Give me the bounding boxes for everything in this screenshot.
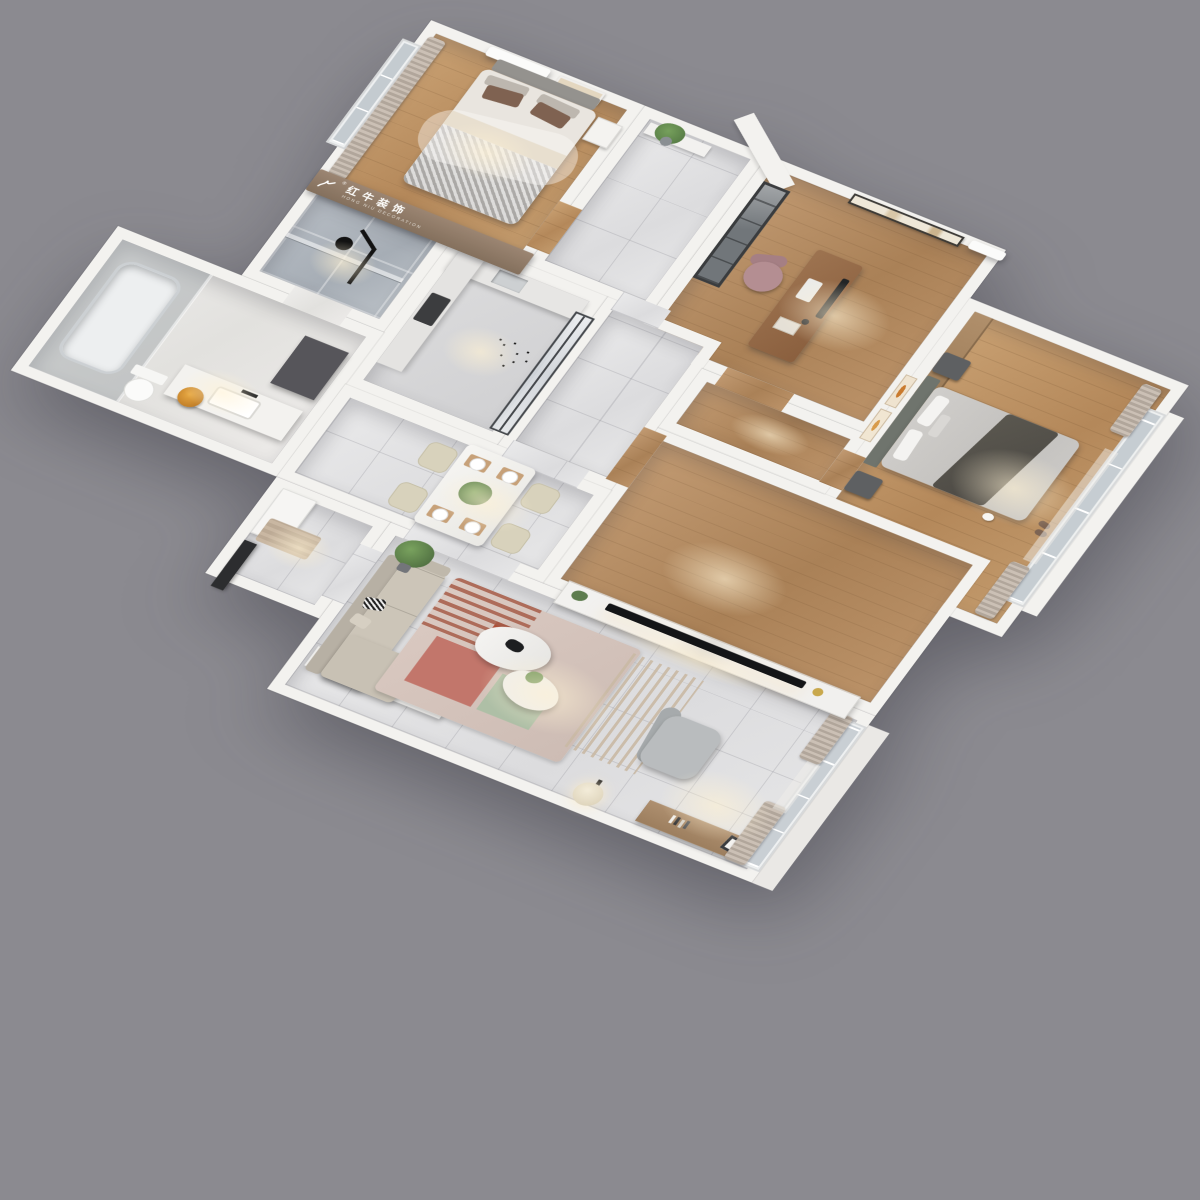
registered-mark: ® [340, 181, 347, 187]
apartment-plan: ® 红牛装饰 HONG NIU DECORATION [0, 0, 1200, 924]
bull-logo-icon [314, 176, 338, 194]
scene-background: ® 红牛装饰 HONG NIU DECORATION [0, 0, 1200, 1200]
